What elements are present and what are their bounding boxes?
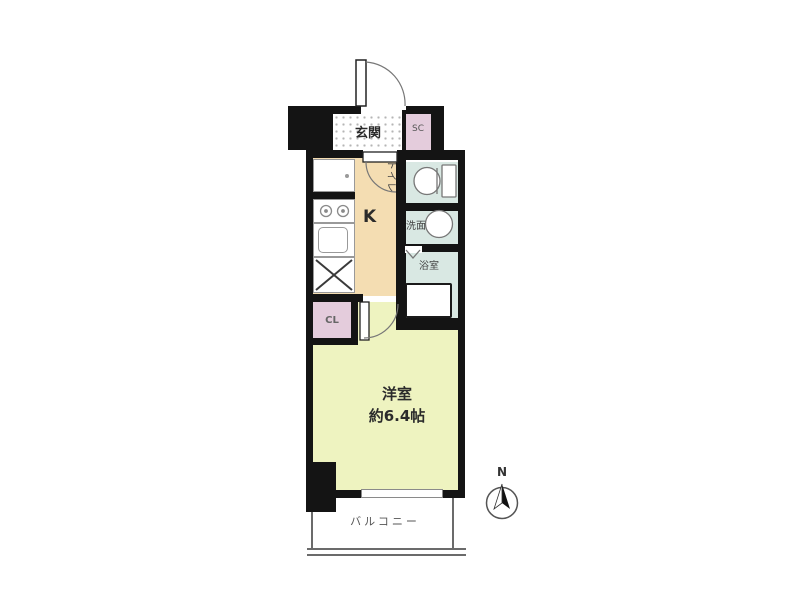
western-room-name: 洋室: [330, 383, 464, 405]
wall: [306, 338, 358, 345]
compass-north-label: N: [494, 465, 510, 479]
sink-basin: [318, 227, 348, 253]
balcony-rail: [311, 512, 313, 549]
balcony-rail: [307, 554, 466, 556]
washer-space: [313, 257, 355, 293]
wall: [306, 150, 363, 158]
entrance-label: 玄関: [333, 121, 403, 141]
balcony-rail: [307, 548, 466, 550]
balcony-label: バルコニー: [327, 513, 443, 529]
toilet-area: [406, 162, 458, 203]
refrigerator-space: [313, 159, 355, 192]
shoe-closet-label: SC: [405, 122, 431, 136]
western-room-label: 洋室 約6.4帖: [330, 383, 464, 427]
wall: [443, 490, 465, 498]
kitchen-label: K: [363, 207, 376, 227]
bathtub: [405, 283, 452, 318]
toilet-label: トイレ: [385, 160, 400, 202]
wall: [333, 106, 361, 114]
wall: [288, 106, 333, 150]
wall: [313, 192, 355, 199]
balcony-rail: [452, 498, 454, 549]
floorplan: 玄関 SC トイレ 洗面 浴室 K CL 洋室 約6.4帖 バルコニー N: [0, 0, 800, 600]
wall: [336, 490, 361, 498]
stove-counter: [313, 199, 355, 223]
compass-icon: [487, 484, 518, 519]
wall: [406, 203, 458, 211]
wall: [306, 150, 313, 462]
wall: [406, 244, 458, 252]
wall: [396, 318, 465, 330]
washroom-label: 洗面: [403, 211, 429, 237]
bathroom-label: 浴室: [413, 256, 445, 272]
western-room-size: 約6.4帖: [330, 405, 464, 427]
balcony-window: [361, 489, 443, 498]
structural-pillar: [306, 462, 336, 512]
entrance-door: [356, 60, 405, 106]
closet-label: CL: [313, 302, 351, 338]
wall: [397, 150, 465, 160]
